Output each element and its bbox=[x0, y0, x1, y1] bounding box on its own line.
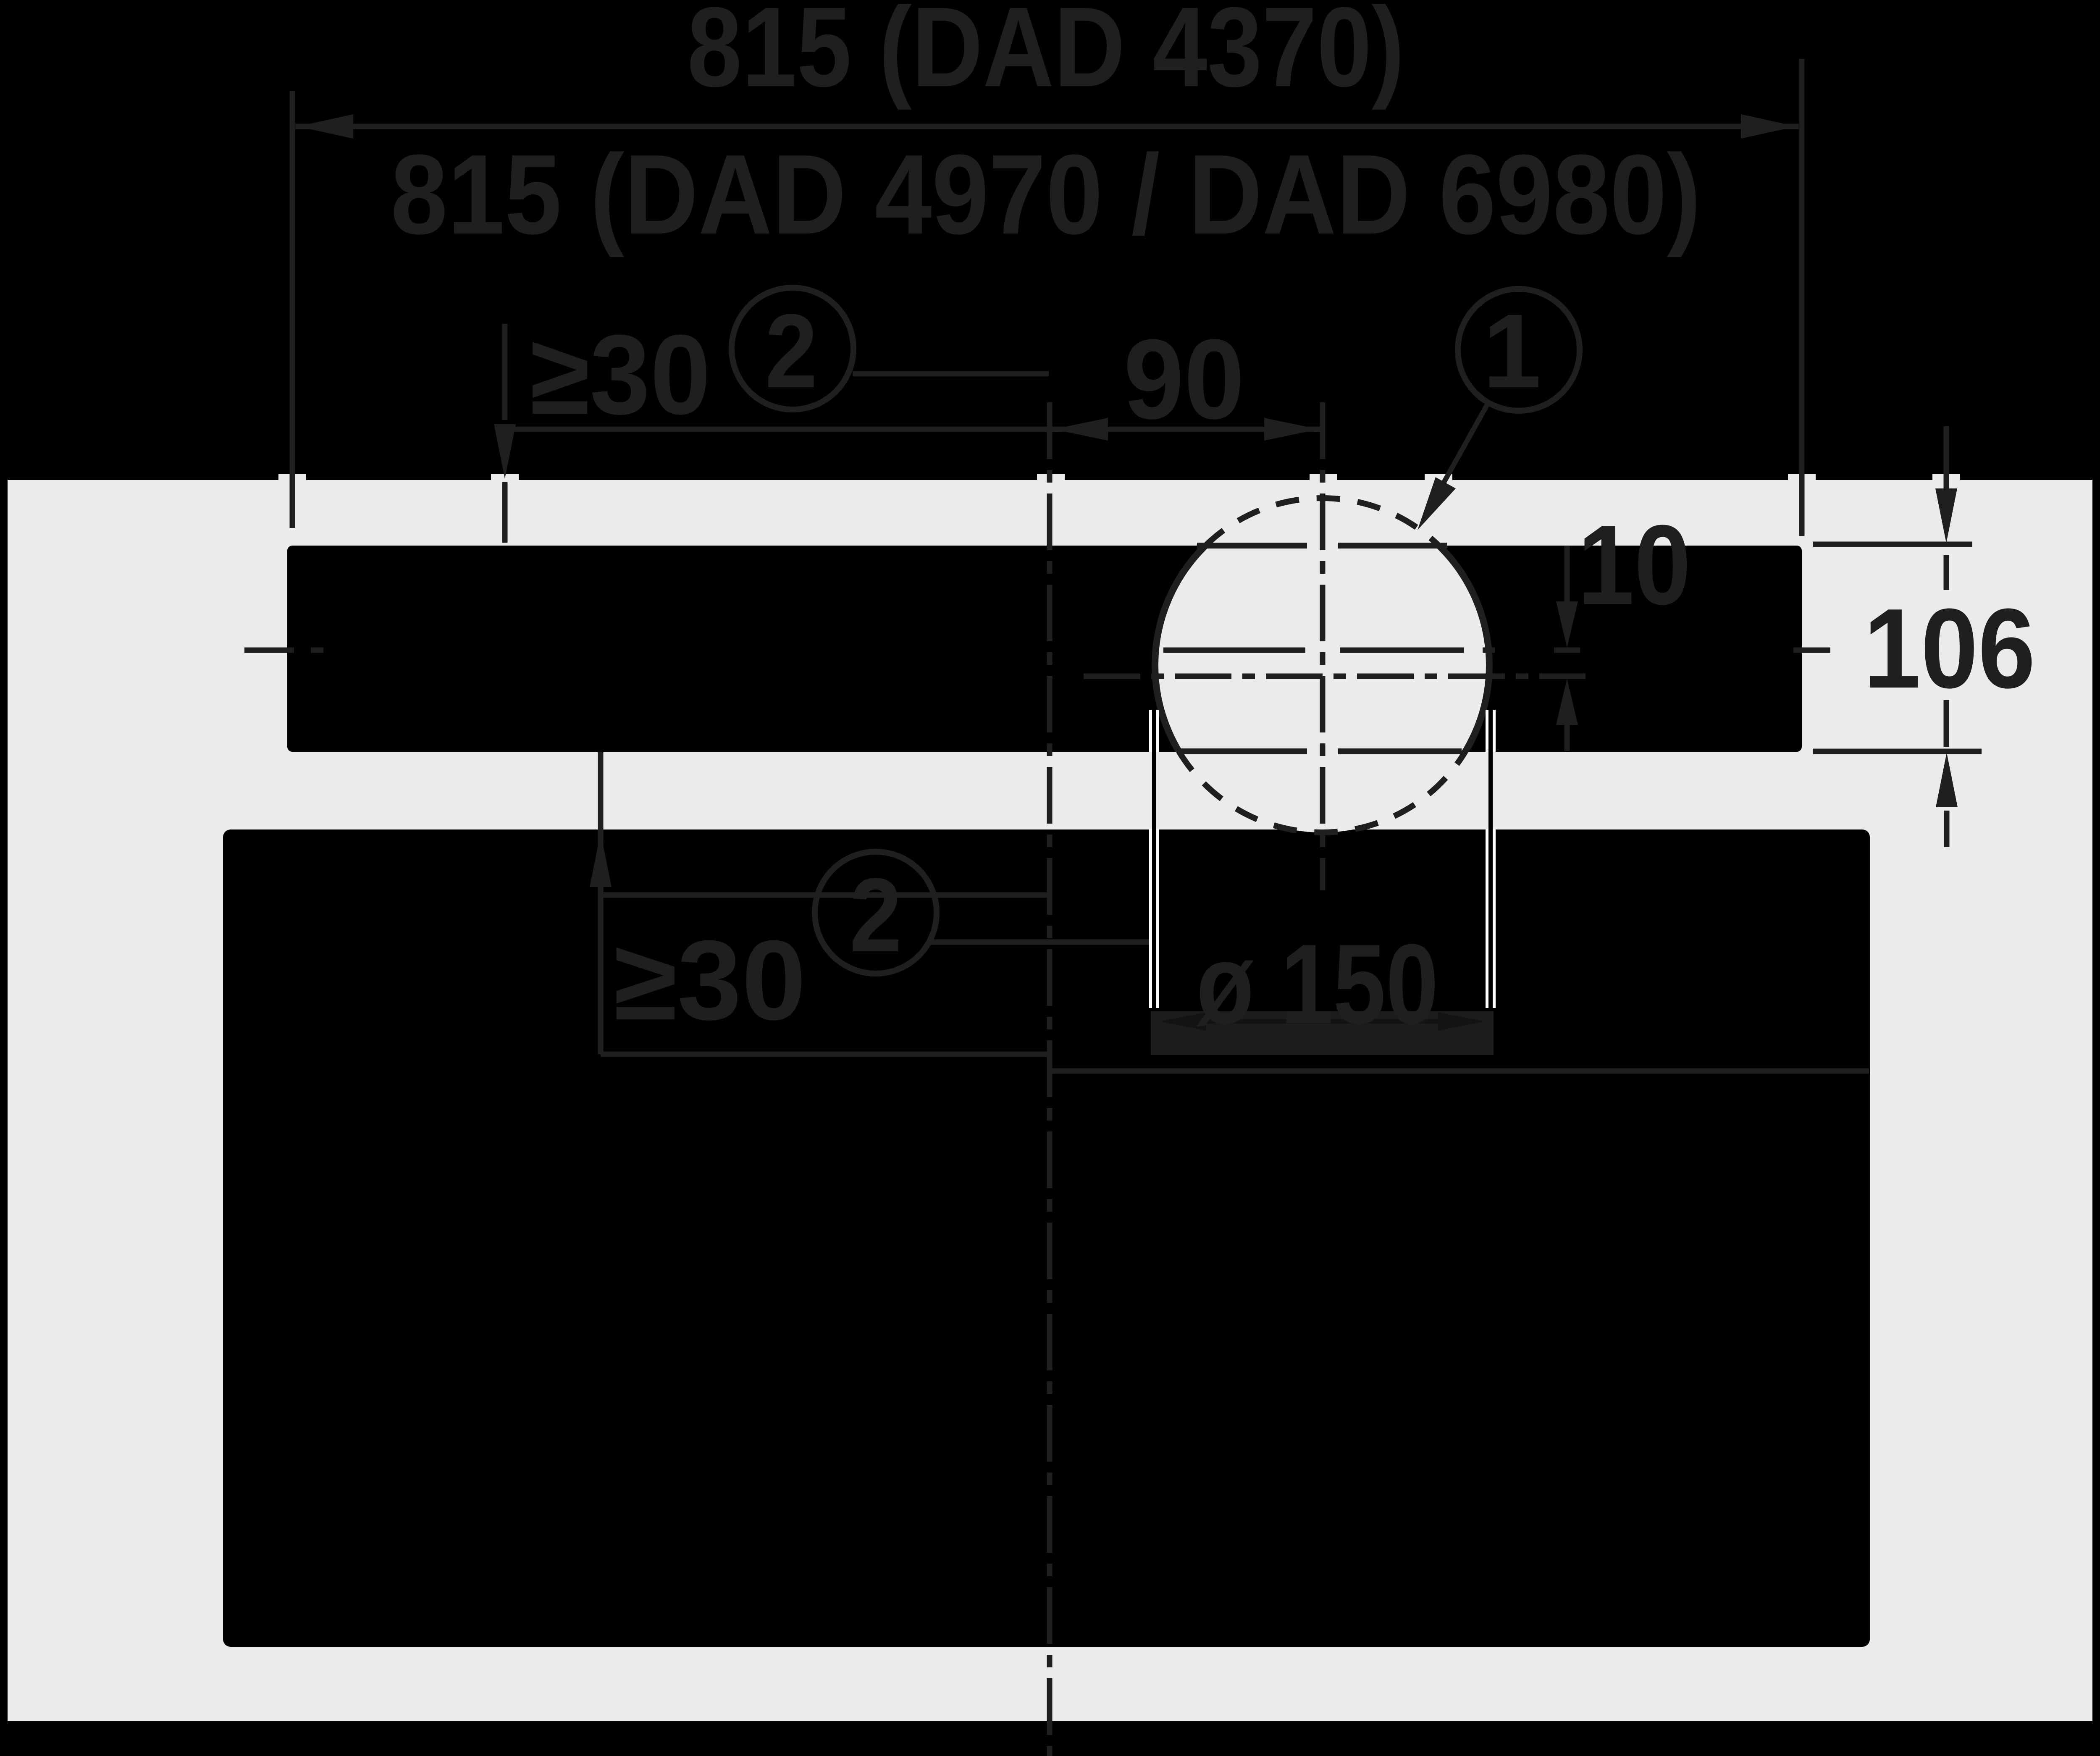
svg-text:1: 1 bbox=[1483, 292, 1541, 409]
svg-text:≥30: ≥30 bbox=[614, 917, 806, 1044]
svg-text:2: 2 bbox=[850, 856, 902, 974]
svg-text:90: 90 bbox=[1123, 316, 1244, 443]
svg-text:815 (DAD 4970 / DAD 6980): 815 (DAD 4970 / DAD 6980) bbox=[391, 131, 1701, 258]
svg-text:10: 10 bbox=[1578, 502, 1691, 628]
svg-text:≥30: ≥30 bbox=[530, 312, 711, 438]
svg-text:ø 150: ø 150 bbox=[1196, 921, 1438, 1047]
svg-text:815 (DAD 4370): 815 (DAD 4370) bbox=[687, 0, 1404, 111]
svg-text:106: 106 bbox=[1864, 585, 2035, 712]
svg-text:2: 2 bbox=[765, 292, 818, 409]
